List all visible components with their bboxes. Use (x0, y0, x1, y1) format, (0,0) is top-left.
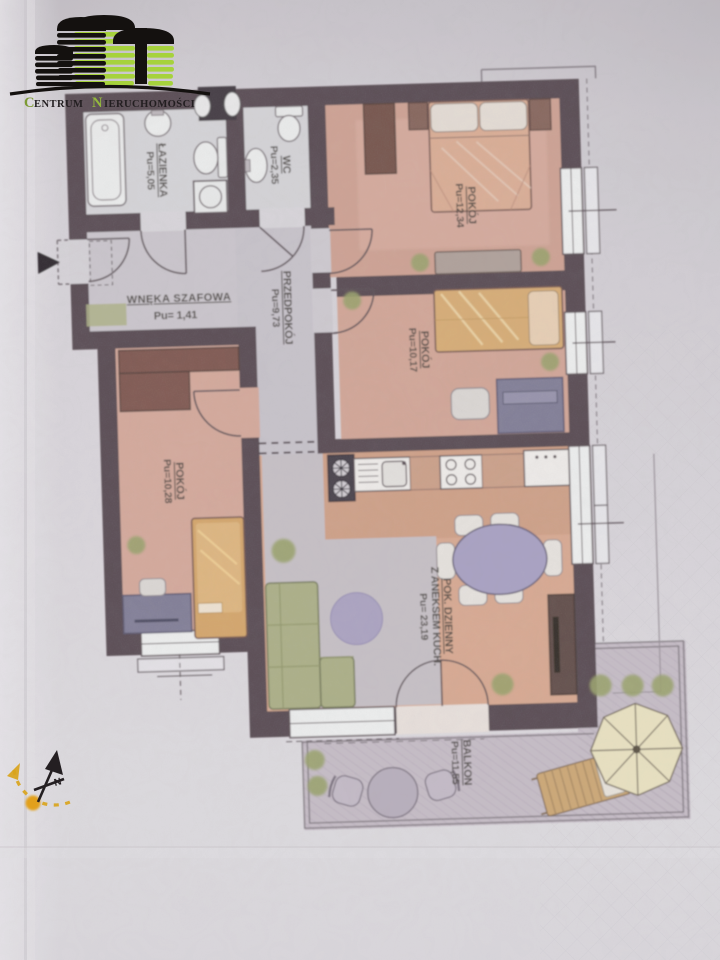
svg-text:ENTRUM: ENTRUM (34, 99, 83, 110)
svg-text:IERUCHOMOŚCI: IERUCHOMOŚCI (104, 98, 195, 110)
svg-text:N: N (92, 95, 103, 111)
svg-text:C: C (24, 95, 34, 111)
